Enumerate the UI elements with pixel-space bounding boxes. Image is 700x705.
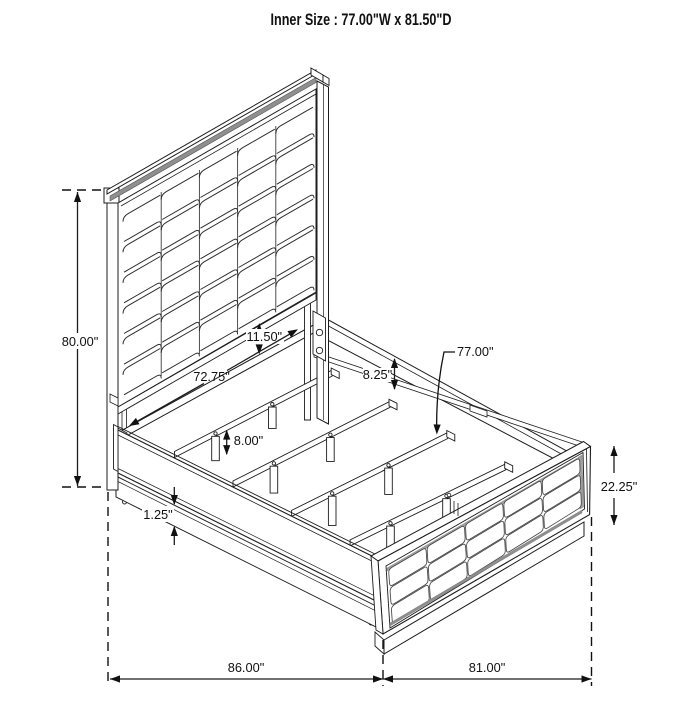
svg-text:8.25": 8.25" bbox=[363, 367, 392, 382]
svg-text:86.00": 86.00" bbox=[228, 660, 265, 675]
svg-text:72.75": 72.75" bbox=[193, 369, 230, 384]
svg-text:22.25": 22.25" bbox=[601, 479, 638, 494]
svg-text:Inner Size : 77.00"W x 81.50"D: Inner Size : 77.00"W x 81.50"D bbox=[271, 11, 452, 29]
svg-text:81.00": 81.00" bbox=[469, 660, 506, 675]
svg-text:8.00": 8.00" bbox=[234, 433, 263, 448]
svg-text:80.00": 80.00" bbox=[62, 334, 99, 349]
svg-text:77.00": 77.00" bbox=[457, 344, 494, 359]
svg-text:1.25": 1.25" bbox=[143, 507, 172, 522]
